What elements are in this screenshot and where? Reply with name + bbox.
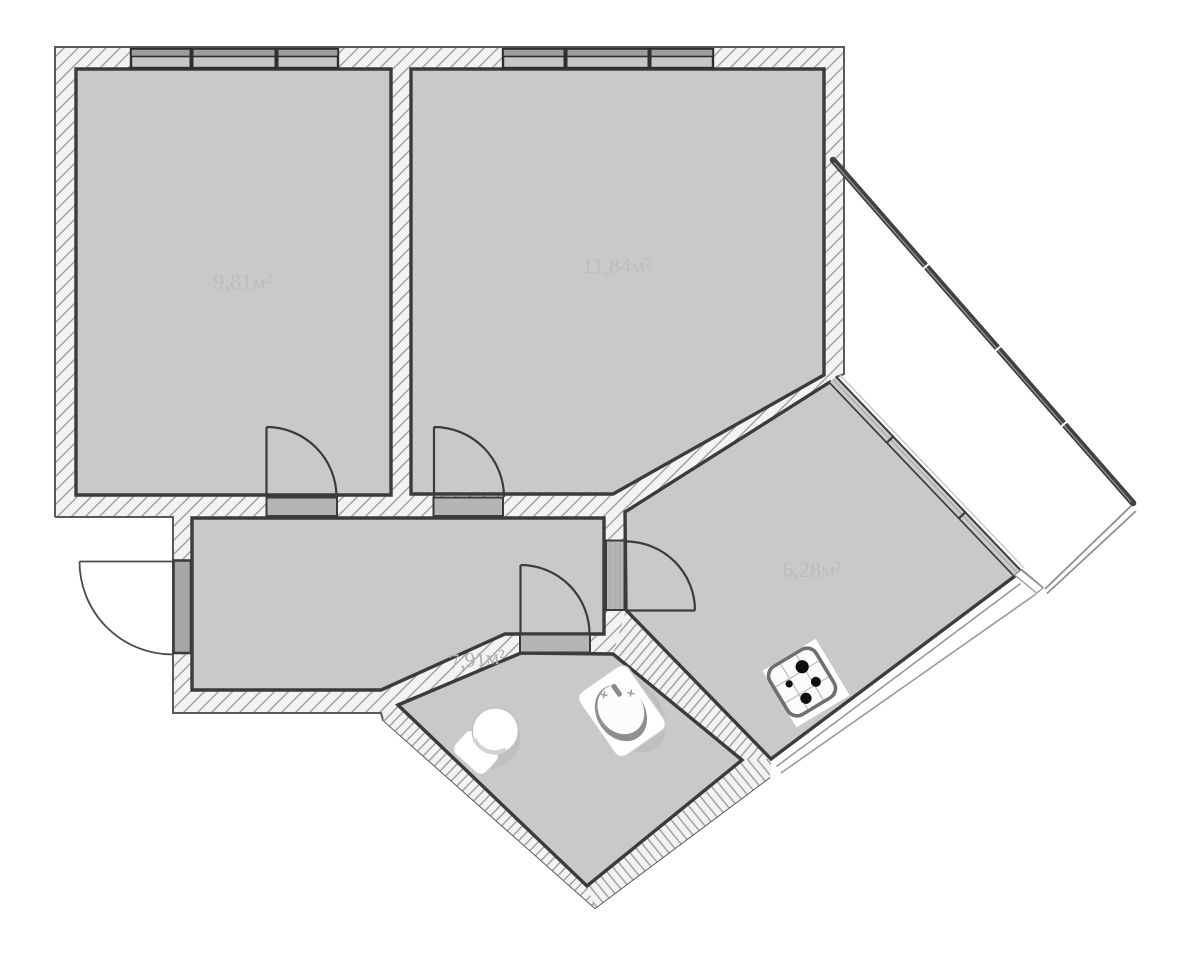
svg-text:9,81м²: 9,81м²: [213, 269, 272, 294]
svg-text:11,84м²: 11,84м²: [582, 253, 652, 278]
svg-text:6,28м²: 6,28м²: [782, 557, 841, 582]
